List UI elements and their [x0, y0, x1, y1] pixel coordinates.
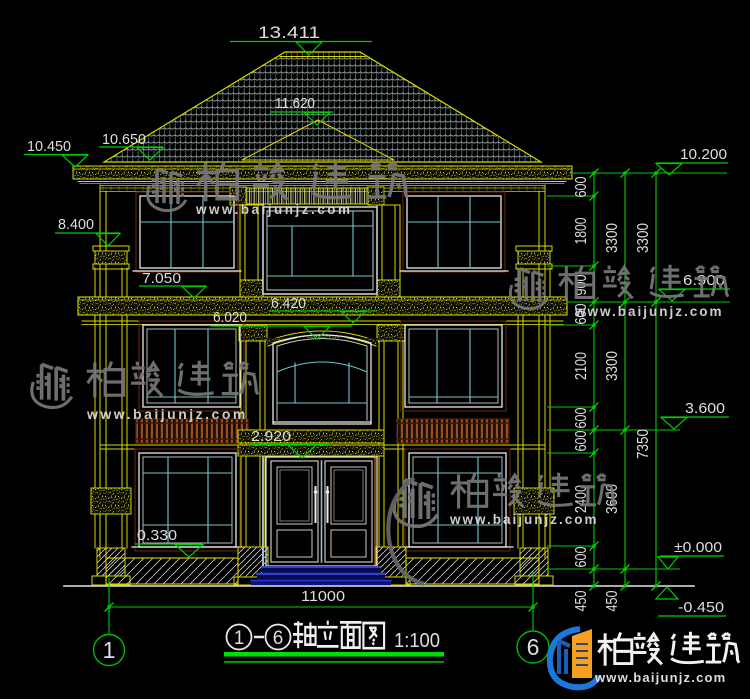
svg-text:7.050: 7.050 — [142, 271, 181, 287]
svg-text:1800: 1800 — [573, 217, 590, 244]
svg-text:600: 600 — [573, 430, 590, 451]
svg-text:6: 6 — [273, 628, 284, 649]
svg-text:10.650: 10.650 — [102, 131, 146, 148]
svg-text:www.baijunjz.com: www.baijunjz.com — [86, 406, 248, 422]
svg-text:0.330: 0.330 — [137, 527, 177, 544]
svg-text:7350: 7350 — [635, 429, 652, 459]
svg-text:1: 1 — [234, 628, 245, 649]
svg-text:-0.450: -0.450 — [678, 599, 724, 616]
svg-text:3300: 3300 — [635, 223, 652, 253]
svg-text:2100: 2100 — [573, 352, 590, 380]
svg-text:10.450: 10.450 — [27, 138, 71, 155]
svg-text:600: 600 — [573, 407, 590, 428]
svg-text:11.620: 11.620 — [275, 95, 315, 112]
svg-text:6.020: 6.020 — [213, 310, 247, 326]
svg-text:13.411: 13.411 — [258, 23, 320, 42]
svg-text:11000: 11000 — [301, 588, 345, 605]
svg-text:3300: 3300 — [604, 223, 621, 253]
svg-text:1:100: 1:100 — [394, 630, 440, 652]
svg-text:450: 450 — [573, 590, 590, 611]
svg-text:2.920: 2.920 — [251, 428, 291, 445]
svg-text:±0.000: ±0.000 — [674, 539, 722, 556]
svg-text:1: 1 — [103, 637, 116, 663]
svg-text:10.200: 10.200 — [680, 146, 727, 163]
svg-text:6: 6 — [527, 634, 540, 660]
svg-text:www.baijunjz.com: www.baijunjz.com — [449, 512, 599, 527]
svg-text:600: 600 — [573, 546, 590, 567]
svg-text:www.baijunjz.com: www.baijunjz.com — [574, 304, 724, 319]
svg-text:3300: 3300 — [604, 351, 621, 381]
svg-text:6.420: 6.420 — [271, 296, 306, 312]
svg-text:www.baijunjz.com: www.baijunjz.com — [594, 670, 726, 685]
svg-text:450: 450 — [604, 590, 621, 611]
svg-text:3.600: 3.600 — [685, 400, 725, 417]
svg-text:www.baijunjz.com: www.baijunjz.com — [195, 202, 353, 217]
svg-text:6.900: 6.900 — [683, 272, 725, 289]
svg-text:600: 600 — [573, 176, 590, 197]
svg-text:8.400: 8.400 — [58, 217, 94, 233]
